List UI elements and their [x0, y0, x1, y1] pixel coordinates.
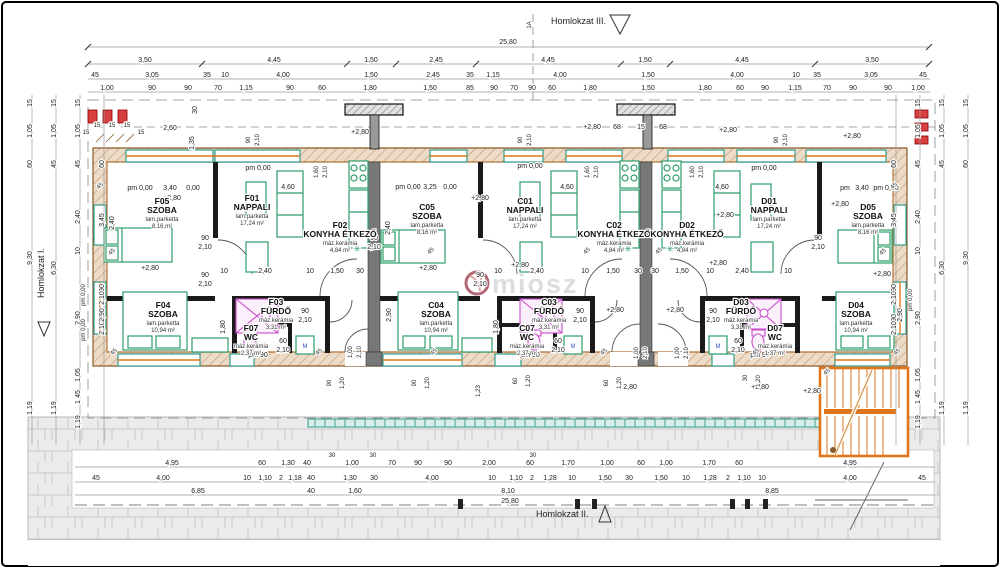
- room-area: 10,94 m²: [424, 328, 448, 334]
- dimension-value: 2,90: [915, 311, 922, 325]
- dimension-value: 45: [92, 475, 100, 482]
- dimension-value: 35: [203, 72, 211, 79]
- annotation: 2,60: [163, 125, 177, 132]
- dimension-value: 90: [444, 460, 452, 467]
- annotation: pm 0,00: [81, 319, 87, 341]
- annotation: 30: [192, 106, 199, 114]
- annotation: +2,80: [831, 201, 849, 208]
- dimension-value: 1,50: [364, 72, 378, 79]
- annotation: 15: [138, 130, 145, 136]
- annotation: 15: [124, 123, 131, 129]
- room-name: SZOBA: [148, 309, 178, 319]
- annotation: 90: [201, 235, 209, 242]
- annotation: pm 0,00: [245, 165, 270, 172]
- dimension-value: 3,45: [99, 213, 106, 227]
- room-name: KONYHA ÉTKEZŐ: [577, 228, 651, 239]
- room-name: NAPPALI: [751, 205, 788, 215]
- dimension-value: 60: [891, 160, 898, 168]
- dimension-value: 1,05: [939, 124, 946, 138]
- annotation: 15: [109, 123, 116, 129]
- dimension-value: 10: [75, 247, 82, 255]
- room-area: 2,37 m²: [241, 351, 261, 357]
- annotation: 30: [356, 268, 364, 275]
- dimension-value: 60: [735, 460, 743, 467]
- dimension-value: 1,80: [698, 85, 712, 92]
- room-name: SZOBA: [421, 309, 451, 319]
- dimension-value: 6,30: [939, 261, 946, 275]
- annotation: 1A: [527, 21, 533, 28]
- annotation: 2,10: [706, 317, 720, 324]
- dimension-value: 60: [736, 85, 744, 92]
- annotation: pm 0,00: [751, 165, 776, 172]
- room-floor-finish: máz.kerámia: [323, 241, 358, 247]
- dimension-value: 25,80: [501, 498, 519, 505]
- dimension-value: 2: [279, 475, 283, 482]
- dimension-value: 45: [939, 160, 946, 168]
- dimension-value: 4,00: [730, 72, 744, 79]
- dimension-value: 1,50: [423, 85, 437, 92]
- annotation: 2,10: [527, 134, 533, 146]
- annotation: 30: [743, 374, 749, 381]
- annotation: 15: [83, 130, 90, 136]
- room-floor-finish: lam.parketta: [508, 217, 542, 223]
- annotation: +2,80: [716, 212, 734, 219]
- dimension-value: 40: [303, 460, 311, 467]
- dimension-value: 2,40: [75, 210, 82, 224]
- annotation: 90: [709, 308, 717, 315]
- annotation: 2,10: [323, 166, 329, 178]
- annotation: 90: [201, 272, 209, 279]
- dimension-value: 4,00: [425, 475, 439, 482]
- dimension-value: 1: [915, 400, 922, 404]
- dimension-value: 10: [682, 475, 690, 482]
- annotation: 2,10: [731, 347, 745, 354]
- dimension-value: 1,70: [561, 460, 575, 467]
- dimension-value: 3,50: [865, 57, 879, 64]
- dimension-value: 1,50: [641, 85, 655, 92]
- annotation: pm 0,00: [127, 185, 152, 192]
- dimension-value: 1,10: [737, 475, 751, 482]
- annotation: +2,80: [583, 124, 601, 131]
- room-floor-finish: lam.parketta: [145, 217, 179, 223]
- dimension-value: 9,30: [27, 251, 34, 265]
- dimension-value: 2,45: [426, 72, 440, 79]
- dimension-value: 60: [548, 85, 556, 92]
- annotation: 2,10: [573, 317, 587, 324]
- cabinet: [462, 338, 492, 352]
- dimension-value: 6,85: [191, 488, 205, 495]
- annotation: +2,80: [709, 260, 727, 267]
- annotation: 2,40: [258, 268, 272, 275]
- annotation: 2,40: [530, 268, 544, 275]
- dimension-value: 2,10: [99, 321, 106, 335]
- dimension-value: 60: [963, 160, 970, 168]
- annotation: 1,20: [617, 377, 623, 389]
- dimension-value: 2,00: [482, 460, 496, 467]
- dimension-value: 8,85: [765, 488, 779, 495]
- dimension-value: 90: [414, 460, 422, 467]
- facade-top-label: Homlokzat III.: [551, 16, 606, 26]
- room-name: WC: [244, 332, 258, 342]
- annotation: +2,80: [606, 307, 624, 314]
- dimension-value: 1,19: [963, 401, 970, 415]
- dimension-value: 2,10: [891, 291, 898, 305]
- annotation: pm 0,00: [908, 289, 914, 311]
- dimension-value: 4,95: [843, 460, 857, 467]
- annotation: 2,40: [735, 268, 749, 275]
- annotation: 4,60: [715, 184, 729, 191]
- annotation: 30: [634, 268, 642, 275]
- room-floor-finish: máz.kerámia: [532, 318, 567, 324]
- dimension-value: 1,00: [911, 85, 925, 92]
- dimension-value: 35: [813, 72, 821, 79]
- annotation: pm 0,00: [517, 163, 542, 170]
- dimension-value: 1,70: [702, 460, 716, 467]
- dimension-value: 2,10: [891, 321, 898, 335]
- annotation: 1,00: [634, 347, 640, 359]
- dimension-value: 45: [918, 475, 926, 482]
- annotation: 90: [476, 272, 484, 279]
- dimension-value: 10: [221, 72, 229, 79]
- dimension-value: 10: [792, 72, 800, 79]
- dimension-value: 1,19: [915, 415, 922, 429]
- annotation: pm 0,00: [395, 184, 420, 191]
- cabinet: [192, 338, 228, 352]
- annotation: 60: [279, 338, 287, 345]
- dimension-value: 1,50: [598, 475, 612, 482]
- annotation: 2,90: [99, 308, 106, 322]
- annotation: 2,10: [276, 347, 290, 354]
- annotation: 2,90: [386, 308, 393, 322]
- annotation: 60: [604, 379, 610, 386]
- dimension-value: 45: [915, 390, 922, 398]
- dimension-value: 1,19: [27, 401, 34, 415]
- room-area: 4,84 m²: [604, 248, 624, 254]
- annotation: +2,80: [419, 265, 437, 272]
- annotation: 1,60: [690, 166, 696, 178]
- dimension-value: 4,45: [735, 57, 749, 64]
- dimension-value: 15: [75, 99, 82, 107]
- dimension-value: 70: [510, 85, 518, 92]
- dimension-value: 10: [568, 475, 576, 482]
- room-area: 10,94 m²: [151, 328, 175, 334]
- annotation: 1,20: [340, 377, 346, 389]
- dimension-value: 90: [99, 284, 106, 292]
- annotation: 2,10: [643, 347, 649, 359]
- dimension-value: 45: [75, 390, 82, 398]
- dimension-value: 10: [243, 475, 251, 482]
- room-name: FÜRDŐ: [261, 305, 292, 316]
- dimension-value: 1,05: [963, 124, 970, 138]
- annotation: 2,10: [367, 244, 381, 251]
- dimension-value: 6,30: [51, 261, 58, 275]
- dimension-value: 9,30: [963, 251, 970, 265]
- dimension-value: 30: [370, 475, 378, 482]
- dimension-value: 1,00: [659, 460, 673, 467]
- dimension-value: 1,05: [51, 124, 58, 138]
- annotation: 60: [513, 377, 519, 384]
- dimension-value: 4,00: [553, 72, 567, 79]
- dimension-value: 90: [884, 85, 892, 92]
- annotation: 3,25: [423, 184, 437, 191]
- dimension-value: 60: [318, 85, 326, 92]
- dimension-value: 70: [388, 460, 396, 467]
- annotation: M: [716, 344, 721, 350]
- annotation: +2,80: [471, 195, 489, 202]
- dimension-value: 60: [526, 460, 534, 467]
- dimension-value: 1,28: [543, 475, 557, 482]
- annotation: M: [303, 344, 308, 350]
- floor-plan-page: Homlokzat III. Homlokzat II. Homlokzat I…: [0, 0, 1000, 568]
- room-floor-finish: máz.kerámia: [510, 344, 545, 350]
- dimension-value: 25,80: [499, 39, 517, 46]
- annotation: 10: [494, 268, 502, 275]
- annotation: 3,40: [163, 185, 177, 192]
- dimension-value: 45: [75, 160, 82, 168]
- room-area: 1,37 m²: [765, 351, 785, 357]
- dimension-value: 40: [307, 475, 315, 482]
- annotation: 90: [518, 136, 524, 143]
- annotation: 1,20: [425, 377, 431, 389]
- dimension-value: 35: [466, 72, 474, 79]
- dimension-value: 40: [307, 488, 315, 495]
- annotation: 4,60: [560, 184, 574, 191]
- room-name: SZOBA: [841, 309, 871, 319]
- dimension-value: 1,05: [915, 124, 922, 138]
- top-windows: [126, 150, 886, 162]
- room-name: FÜRDŐ: [534, 305, 565, 316]
- annotation: 90: [246, 136, 252, 143]
- annotation: 2,40: [109, 216, 116, 230]
- annotation: 2,10: [298, 317, 312, 324]
- room-floor-finish: máz.kerámia: [724, 318, 759, 324]
- annotation: 1,20: [526, 375, 532, 387]
- annotation: 2,90: [897, 308, 904, 322]
- annotation: 10: [220, 268, 228, 275]
- annotation: 68: [659, 124, 667, 131]
- annotation: 1,35: [189, 136, 196, 150]
- dimension-value: 3,50: [138, 57, 152, 64]
- dimension-value: 4,95: [165, 460, 179, 467]
- dimension-value: 1,05: [75, 124, 82, 138]
- room-area: 3,31 m²: [266, 325, 286, 331]
- dimension-value: 15: [963, 99, 970, 107]
- room-name: NAPPALI: [234, 202, 271, 212]
- room-floor-finish: lam.parketta: [419, 321, 453, 327]
- dimension-value: 60: [637, 460, 645, 467]
- annotation: 1,20: [756, 375, 762, 387]
- dimension-value: 85: [466, 85, 474, 92]
- annotation: 15: [637, 124, 645, 131]
- room-name: KONYHA ÉTKEZŐ: [303, 228, 377, 239]
- annotation: +2,80: [843, 133, 861, 140]
- annotation: 68: [613, 124, 621, 131]
- dimension-value: 10: [758, 475, 766, 482]
- annotation: 2,10: [811, 244, 825, 251]
- dimension-value: 45: [919, 72, 927, 79]
- annotation: 10: [784, 268, 792, 275]
- annotation: 90: [301, 308, 309, 315]
- annotation: 2,10: [198, 244, 212, 251]
- dimension-value: 1: [75, 400, 82, 404]
- dimension-value: 1,15: [486, 72, 500, 79]
- room-area: 8,16 m²: [152, 224, 172, 230]
- dimension-value: 1,30: [343, 475, 357, 482]
- dimension-value: 1,50: [364, 57, 378, 64]
- dimension-value: 1,19: [51, 401, 58, 415]
- annotation: 1,80: [493, 320, 500, 334]
- room-area: 2,37 m²: [517, 351, 537, 357]
- dimension-value: 90: [148, 85, 156, 92]
- room-floor-finish: lam.parketta: [235, 214, 269, 220]
- dimension-value: 1,60: [348, 488, 362, 495]
- annotation: 1,50: [606, 268, 620, 275]
- annotation: +2,80: [719, 127, 737, 134]
- dimension-value: 90: [286, 85, 294, 92]
- dimension-value: 70: [214, 85, 222, 92]
- annotation: 10: [306, 268, 314, 275]
- dimension-value: 2,10: [99, 291, 106, 305]
- room-area: 8,16 m²: [858, 230, 878, 236]
- dimension-value: 60: [99, 160, 106, 168]
- annotation: 2,10: [255, 134, 261, 146]
- dimension-value: 1,19: [75, 415, 82, 429]
- annotation: 2,10: [473, 281, 487, 288]
- room-area: 17,24 m²: [240, 221, 264, 227]
- dimension-value: 10: [488, 475, 496, 482]
- annotation: 90: [774, 136, 780, 143]
- dimension-value: 1,18: [288, 475, 302, 482]
- annotation: 15: [94, 123, 101, 129]
- annotation: 2,10: [783, 134, 789, 146]
- annotation: +2,80: [666, 307, 684, 314]
- dimension-value: 2: [726, 475, 730, 482]
- dimension-value: 3,05: [145, 72, 159, 79]
- annotation: +2,80: [803, 388, 821, 395]
- dimension-value: 4,00: [843, 475, 857, 482]
- dimension-value: 15: [915, 99, 922, 107]
- annotation: +2,80: [141, 265, 159, 272]
- annotation: pm 0,00: [81, 284, 87, 306]
- dimension-value: 1,30: [281, 460, 295, 467]
- dimension-value: 1,80: [583, 85, 597, 92]
- annotation: 90: [576, 308, 584, 315]
- dimension-value: 45: [915, 160, 922, 168]
- dimension-value: 1,50: [641, 72, 655, 79]
- annotation: 0,00: [443, 184, 457, 191]
- annotation: 60: [554, 338, 562, 345]
- room-area: 3,31 m²: [731, 325, 751, 331]
- room-name: NAPPALI: [507, 205, 544, 215]
- room-name: WC: [768, 332, 782, 342]
- annotation: 1,00: [675, 347, 681, 359]
- annotation: pm: [840, 185, 850, 192]
- room-name: SZOBA: [412, 211, 442, 221]
- bed: [104, 228, 172, 262]
- annotation: 2,10: [684, 347, 690, 359]
- terrace-edge-strip: [308, 419, 908, 427]
- annotation: 2,10: [198, 281, 212, 288]
- dimension-value: 90: [761, 85, 769, 92]
- annotation: 0,00: [186, 185, 200, 192]
- annotation: +2,80: [351, 129, 369, 136]
- dimension-value: 15: [51, 99, 58, 107]
- facade-left-label: Homlokzat I.: [36, 248, 46, 298]
- dimension-value: 90: [184, 85, 192, 92]
- annotation: 30: [530, 453, 537, 459]
- dimension-value: 1,05: [915, 368, 922, 382]
- room-name: WC: [520, 332, 534, 342]
- dimension-value: 1,10: [509, 475, 523, 482]
- dimension-value: 1,05: [75, 368, 82, 382]
- site-paving: [28, 417, 940, 566]
- annotation: 4,60: [281, 184, 295, 191]
- annotation: 30: [651, 268, 659, 275]
- dimension-value: 1,15: [788, 85, 802, 92]
- room-area: 4,84 m²: [330, 248, 350, 254]
- dimension-value: 3,45: [891, 213, 898, 227]
- dimension-value: 90: [490, 85, 498, 92]
- dimension-value: 45: [51, 160, 58, 168]
- annotation: 10: [706, 268, 714, 275]
- room-area: 3,31 m²: [539, 325, 559, 331]
- room-name: KONYHA ÉTKEZŐ: [650, 228, 724, 239]
- facade-bottom-label: Homlokzat II.: [536, 509, 589, 519]
- annotation: 90: [412, 379, 418, 386]
- dimension-value: 2,40: [915, 210, 922, 224]
- dimension-value: 1,15: [239, 85, 253, 92]
- annotation: +2,80: [511, 262, 529, 269]
- dimension-value: 15: [939, 99, 946, 107]
- dimension-value: 4,45: [541, 57, 555, 64]
- dimension-value: 90: [849, 85, 857, 92]
- room-name: FÜRDŐ: [726, 305, 757, 316]
- annotation: 1,50: [330, 268, 344, 275]
- dimension-value: 1,05: [27, 124, 34, 138]
- dimension-value: 1,19: [939, 401, 946, 415]
- room-area: 17,24 m²: [757, 224, 781, 230]
- dimension-value: 90: [891, 284, 898, 292]
- room-floor-finish: máz.kerámia: [758, 344, 793, 350]
- dimension-value: 60: [258, 460, 266, 467]
- dimension-value: 2,45: [429, 57, 443, 64]
- dimension-value: 1,00: [345, 460, 359, 467]
- annotation: 1,60: [585, 166, 591, 178]
- dimension-value: 2: [530, 475, 534, 482]
- annotation: 2,10: [594, 166, 600, 178]
- annotation: 30: [329, 453, 336, 459]
- dimension-value: 70: [823, 85, 831, 92]
- annotation: 10: [581, 268, 589, 275]
- annotation: 90: [814, 235, 822, 242]
- annotation: 2,10: [699, 166, 705, 178]
- dimension-value: 1,80: [363, 85, 377, 92]
- room-area: 17,24 m²: [513, 224, 537, 230]
- room-floor-finish: lam.parketta: [410, 223, 444, 229]
- dimension-value: 1,50: [654, 475, 668, 482]
- dimension-value: 3,05: [864, 72, 878, 79]
- room-area: 4,84 m²: [677, 248, 697, 254]
- room-floor-finish: lam.parketta: [839, 321, 873, 327]
- annotation: 1,50: [675, 268, 689, 275]
- annotation: 2,10: [357, 346, 363, 358]
- dimension-value: 4,00: [276, 72, 290, 79]
- dimension-value: 1,00: [600, 460, 614, 467]
- dimension-value: 8,10: [501, 488, 515, 495]
- room-floor-finish: máz.kerámia: [234, 344, 269, 350]
- room-floor-finish: lam.parketta: [752, 217, 786, 223]
- annotation: 1,23: [476, 385, 482, 397]
